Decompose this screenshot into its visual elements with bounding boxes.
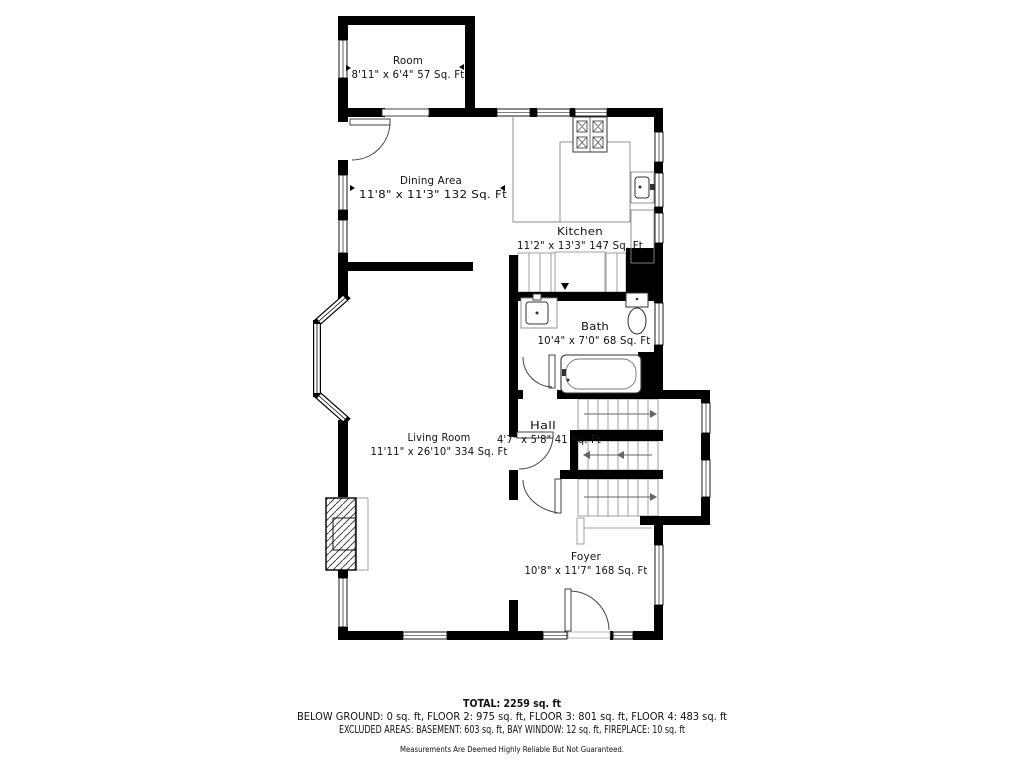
room-dims: 11'8" x 11'3" 132 Sq. Ft: [359, 189, 507, 201]
summary-floors: BELOW GROUND: 0 sq. ft, FLOOR 2: 975 sq.…: [297, 712, 727, 723]
room-name: Hall: [530, 420, 556, 432]
room-label-foyer: Foyer 10'8" x 11'7" 168 Sq. Ft: [525, 551, 648, 577]
room-dims: 11'2" x 13'3" 147 Sq. Ft: [517, 240, 643, 252]
summary-disclaimer: Measurements Are Deemed Highly Reliable …: [400, 745, 624, 754]
bay-window: [317, 298, 345, 419]
dining-door: [350, 119, 390, 160]
pocket-door: [382, 109, 429, 116]
summary-total: TOTAL: 2259 sq. ft: [463, 697, 561, 710]
room-name: Room: [393, 55, 423, 67]
room-label-living: Living Room 11'11" x 26'10" 334 Sq. Ft: [371, 432, 508, 458]
bathtub-icon: [561, 355, 641, 393]
room-name: Foyer: [571, 551, 601, 563]
room-name: Living Room: [408, 432, 471, 444]
room-dims: 10'4" x 7'0" 68 Sq. Ft: [538, 335, 651, 347]
vanity-sink-icon: [521, 294, 557, 328]
room-dims: 8'11" x 6'4" 57 Sq. Ft: [352, 69, 465, 81]
room-dims: 11'11" x 26'10" 334 Sq. Ft: [371, 446, 508, 458]
room-label-room: Room 8'11" x 6'4" 57 Sq. Ft: [352, 55, 465, 81]
summary-excluded: EXCLUDED AREAS: BASEMENT: 603 sq. ft, BA…: [339, 725, 685, 736]
summary-group: TOTAL: 2259 sq. ft BELOW GROUND: 0 sq. f…: [297, 697, 727, 754]
floor-plan-page: Room 8'11" x 6'4" 57 Sq. Ft Dining Area …: [0, 0, 1024, 768]
room-name: Dining Area: [400, 175, 462, 187]
stove-icon: [573, 117, 607, 152]
toilet-icon: [626, 293, 648, 334]
foyer-door: [523, 479, 561, 513]
dimension-ticks: [346, 64, 505, 191]
room-name: Bath: [581, 321, 609, 333]
room-label-dining: Dining Area 11'8" x 11'3" 132 Sq. Ft: [359, 175, 507, 201]
staircase-kitchen: [518, 252, 626, 292]
fireplace-icon: [326, 498, 368, 570]
room-label-kitchen: Kitchen 11'2" x 13'3" 147 Sq. Ft: [517, 226, 643, 252]
entry-door: [565, 589, 609, 631]
room-name: Kitchen: [557, 226, 603, 238]
kitchen-sink-icon: [631, 172, 655, 203]
room-dims: 4'7" x 5'8" 41 Sq. Ft: [497, 434, 601, 446]
floor-plan: Room 8'11" x 6'4" 57 Sq. Ft Dining Area …: [0, 0, 1024, 768]
bath-door: [523, 355, 555, 388]
room-dims: 10'8" x 11'7" 168 Sq. Ft: [525, 565, 648, 577]
